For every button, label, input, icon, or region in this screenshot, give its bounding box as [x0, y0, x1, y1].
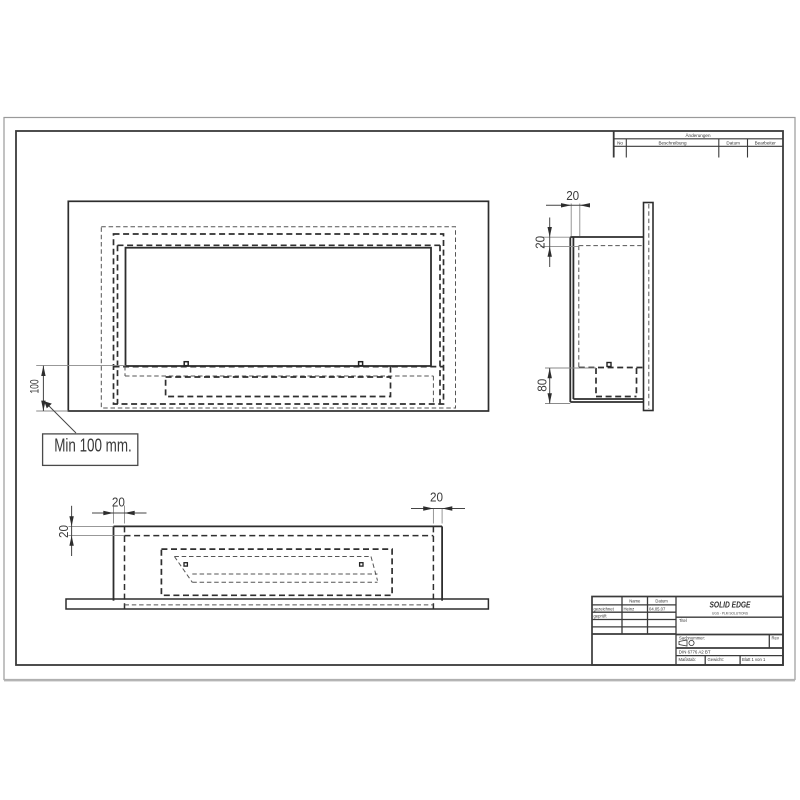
svg-text:20: 20: [112, 494, 125, 509]
svg-text:Blatt 1 von 1: Blatt 1 von 1: [742, 657, 766, 662]
svg-text:Beschreibung: Beschreibung: [658, 140, 687, 145]
svg-text:20: 20: [566, 188, 579, 203]
svg-text:Datum: Datum: [655, 599, 668, 604]
svg-text:Bearbeiter: Bearbeiter: [755, 140, 777, 145]
svg-text:geprüft: geprüft: [594, 614, 608, 619]
svg-text:Änderungen: Änderungen: [685, 132, 710, 138]
svg-text:Name: Name: [629, 599, 641, 604]
svg-text:04.05.07: 04.05.07: [649, 606, 666, 611]
svg-text:80: 80: [534, 379, 549, 392]
svg-text:Sachnummer:: Sachnummer:: [679, 635, 705, 640]
svg-text:Maßstab:: Maßstab:: [679, 657, 696, 662]
svg-text:No: No: [617, 140, 623, 145]
svg-text:Rev: Rev: [772, 635, 780, 640]
svg-text:UGS - PLM SOLUTIONS: UGS - PLM SOLUTIONS: [712, 612, 749, 616]
svg-text:20: 20: [430, 489, 443, 504]
svg-text:Min 100 mm.: Min 100 mm.: [54, 436, 132, 456]
svg-text:Gewicht:: Gewicht:: [708, 657, 724, 662]
svg-text:SOLID EDGE: SOLID EDGE: [710, 600, 751, 610]
svg-text:DIN 6776 A2 BT: DIN 6776 A2 BT: [679, 650, 711, 655]
svg-text:Heinz: Heinz: [624, 606, 635, 611]
svg-text:Titel: Titel: [679, 618, 687, 623]
svg-text:Datum: Datum: [726, 140, 740, 145]
svg-text:20: 20: [532, 236, 547, 249]
svg-text:20: 20: [56, 525, 71, 538]
svg-text:100: 100: [27, 379, 41, 393]
svg-text:gezeichnet: gezeichnet: [594, 606, 615, 611]
